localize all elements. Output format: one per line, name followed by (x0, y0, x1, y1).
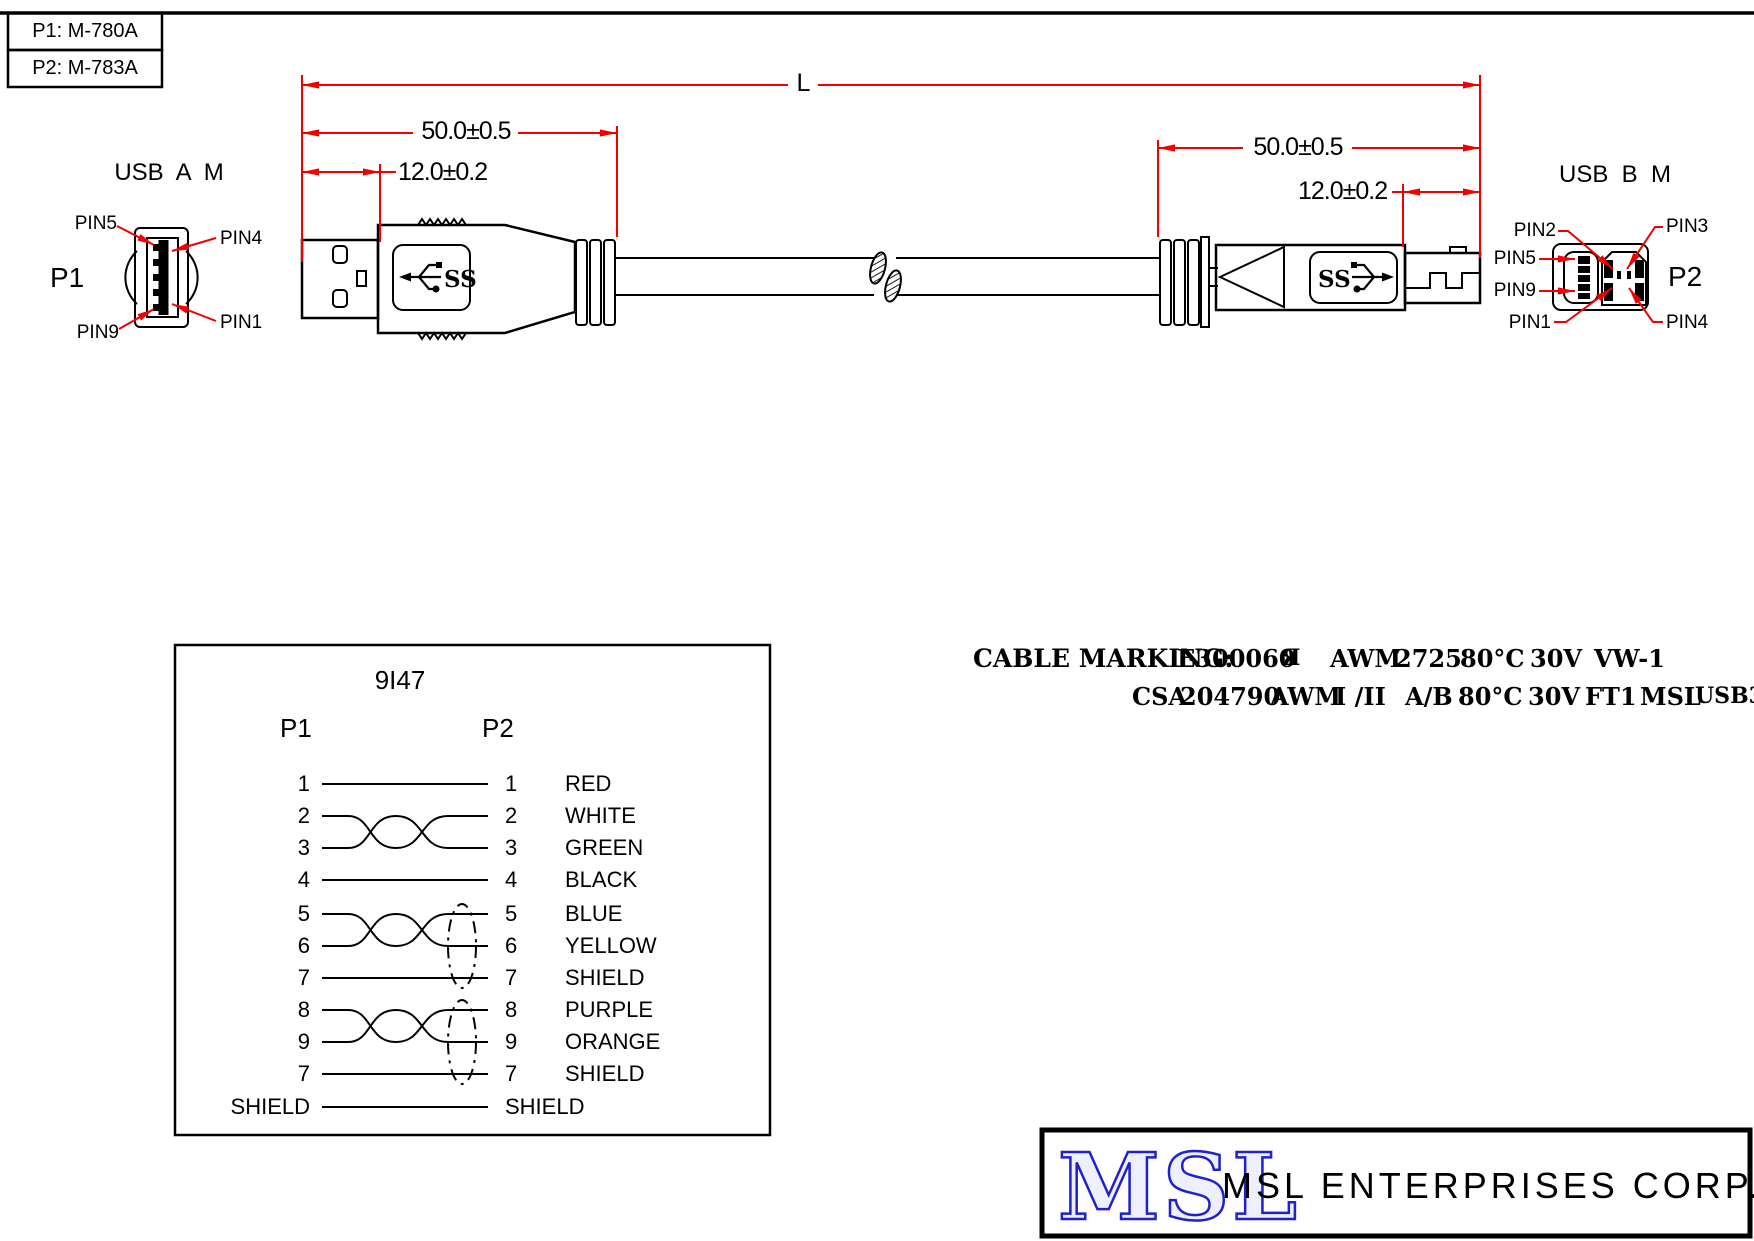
csa-file-number: 204790 (1180, 684, 1280, 710)
wiring-row-p1: 9 (200, 1028, 310, 1056)
connector-a-ref: P1 (50, 263, 84, 294)
wire-color: ORANGE (565, 1028, 725, 1056)
wire-color: RED (565, 770, 725, 798)
usb-b-pin9-label: PIN9 (1478, 281, 1536, 302)
title-block-p1: P1: M-780A (8, 13, 162, 50)
wiring-row-p1: 4 (200, 866, 310, 894)
wiring-row-p1: 1 (200, 770, 310, 798)
usb-a-pin4-label: PIN4 (220, 229, 280, 250)
usb-ss-logo-a-text: SS (444, 266, 477, 293)
usb-b-pin5-label: PIN5 (1478, 249, 1536, 270)
wiring-row-p1: SHIELD (200, 1093, 310, 1121)
usb-ss-logo-b-text: SS (1318, 266, 1351, 293)
usb-a-pin1-label: PIN1 (220, 313, 280, 334)
wire-color: WHITE (565, 802, 725, 830)
twisted-pair-5-6 (322, 914, 488, 946)
usb-b-pin1-label: PIN1 (1493, 313, 1551, 334)
usb-a-pins (153, 244, 159, 311)
usb-ss-logo-a (399, 262, 442, 293)
dim-right-12: 12.0±0.2 (1298, 178, 1387, 206)
engineering-drawing-sheet: { "title_block": { "line1": "P1: M-780A"… (0, 0, 1754, 1240)
marking-msl: MSL (1640, 684, 1701, 710)
wiring-header-p2: P2 (482, 714, 514, 743)
wire-color: GREEN (565, 834, 725, 862)
overmold-chevron (1220, 247, 1284, 307)
usb-b-pin4-label: PIN4 (1666, 313, 1724, 334)
company-name: MSL ENTERPRISES CORP. (1222, 1166, 1754, 1206)
marking-style: 2725 (1395, 646, 1462, 672)
usb-b-pin3-label: PIN3 (1666, 217, 1724, 238)
marking-temp-1: 80°C (1460, 646, 1525, 672)
wiring-row-p2: SHIELD (505, 1093, 625, 1121)
wire-color: SHIELD (565, 1060, 725, 1088)
usb-a-pin9-label: PIN9 (62, 323, 119, 344)
dim-overall-length: L (781, 70, 825, 98)
overmold-ridges-bottom (418, 333, 466, 339)
usb-b-title: USB B M (1550, 162, 1680, 188)
marking-volt-2: 30V (1528, 684, 1580, 710)
wiring-header-p1: P1 (280, 714, 312, 743)
ul-recognized-mark: Я (1281, 646, 1300, 670)
wiring-row-p1: 8 (200, 996, 310, 1024)
twisted-pair-2-3 (322, 816, 488, 848)
wire-color: PURPLE (565, 996, 725, 1024)
usb-b-face (1553, 244, 1648, 310)
usb-a-pin5-label: PIN5 (60, 214, 117, 235)
wire-color: BLACK (565, 866, 725, 894)
wiring-row-p1: 2 (200, 802, 310, 830)
dim-left-12: 12.0±0.2 (398, 159, 487, 187)
marking-awm-2: AWM (1270, 684, 1341, 710)
marking-csa: CSA (1132, 684, 1187, 710)
connector-b-ref: P2 (1668, 262, 1702, 293)
dim-left-50: 50.0±0.5 (410, 118, 522, 146)
marking-volt-1: 30V (1530, 646, 1582, 672)
marking-temp-2: 80°C (1458, 684, 1523, 710)
usb-b-pin2-label: PIN2 (1498, 221, 1556, 242)
marking-awm-1: AWM (1330, 646, 1401, 672)
wiring-row-p1: 7 (200, 964, 310, 992)
dim-right-50: 50.0±0.5 (1240, 134, 1356, 162)
usb-a-face (125, 228, 197, 327)
wire-color: YELLOW (565, 932, 725, 960)
wiring-row-p1: 5 (200, 900, 310, 928)
shell-step-profile (1405, 273, 1480, 288)
ul-file-number: E300060 (1177, 646, 1296, 672)
marking-class: I /II (1335, 684, 1386, 710)
overmold-ridges-top (418, 219, 466, 225)
wire-color: BLUE (565, 900, 725, 928)
wiring-part-number: 9I47 (358, 666, 442, 695)
marking-vw1: VW-1 (1594, 646, 1665, 672)
usb-ss-logo-b (1351, 262, 1394, 293)
cable-assembly (302, 219, 1480, 339)
usb-a-title: USB A M (104, 160, 234, 186)
wiring-row-p1: 7 (200, 1060, 310, 1088)
wire-color: SHIELD (565, 964, 725, 992)
wiring-row-p1: 6 (200, 932, 310, 960)
sheet-border (0, 13, 1754, 87)
title-block-p2: P2: M-783A (8, 50, 162, 87)
twisted-pair-8-9 (322, 1010, 488, 1042)
marking-usb30: USB3.0 (1695, 684, 1754, 708)
wiring-row-p1: 3 (200, 834, 310, 862)
marking-ab: A/B (1405, 684, 1453, 710)
marking-ft1: FT1 (1585, 684, 1637, 710)
